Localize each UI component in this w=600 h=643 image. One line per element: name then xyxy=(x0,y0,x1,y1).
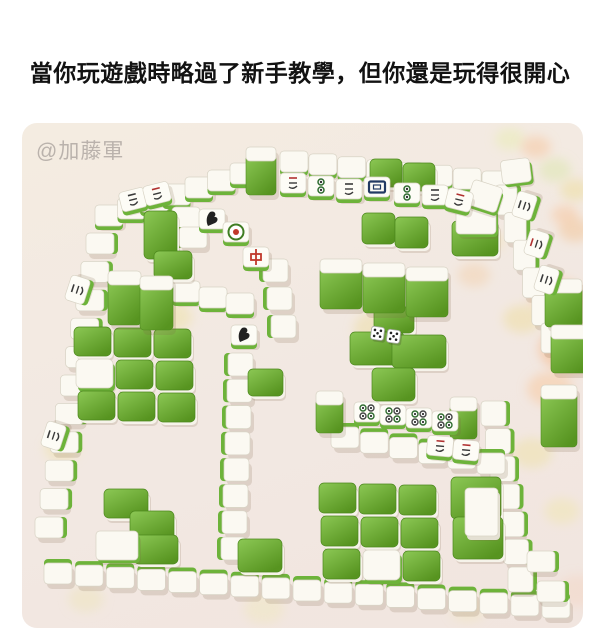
mahjong-face-tile xyxy=(432,411,461,436)
mahjong-maze-photo: @加藤軍 xyxy=(22,123,583,628)
caption: 當你玩遊戲時略過了新手教學，但你還是玩得很開心 xyxy=(10,54,590,88)
mahjong-face-tile xyxy=(231,325,260,350)
mahjong-face-tile xyxy=(406,408,435,433)
mahjong-face-tile xyxy=(336,179,365,204)
mahjong-face-tile xyxy=(354,402,383,427)
mahjong-face-tile xyxy=(452,439,483,466)
mahjong-face-tile xyxy=(223,222,252,247)
mahjong-face-tile xyxy=(394,183,423,208)
mahjong-face-tile xyxy=(364,177,393,202)
watermark: @加藤軍 xyxy=(36,135,124,165)
mahjong-face-tile xyxy=(243,247,272,272)
mahjong-face-tile xyxy=(380,405,409,430)
mahjong-face-tile xyxy=(426,435,457,462)
maze-illustration xyxy=(22,123,583,628)
mahjong-face-tile xyxy=(280,173,309,198)
mahjong-face-tile xyxy=(308,176,337,201)
